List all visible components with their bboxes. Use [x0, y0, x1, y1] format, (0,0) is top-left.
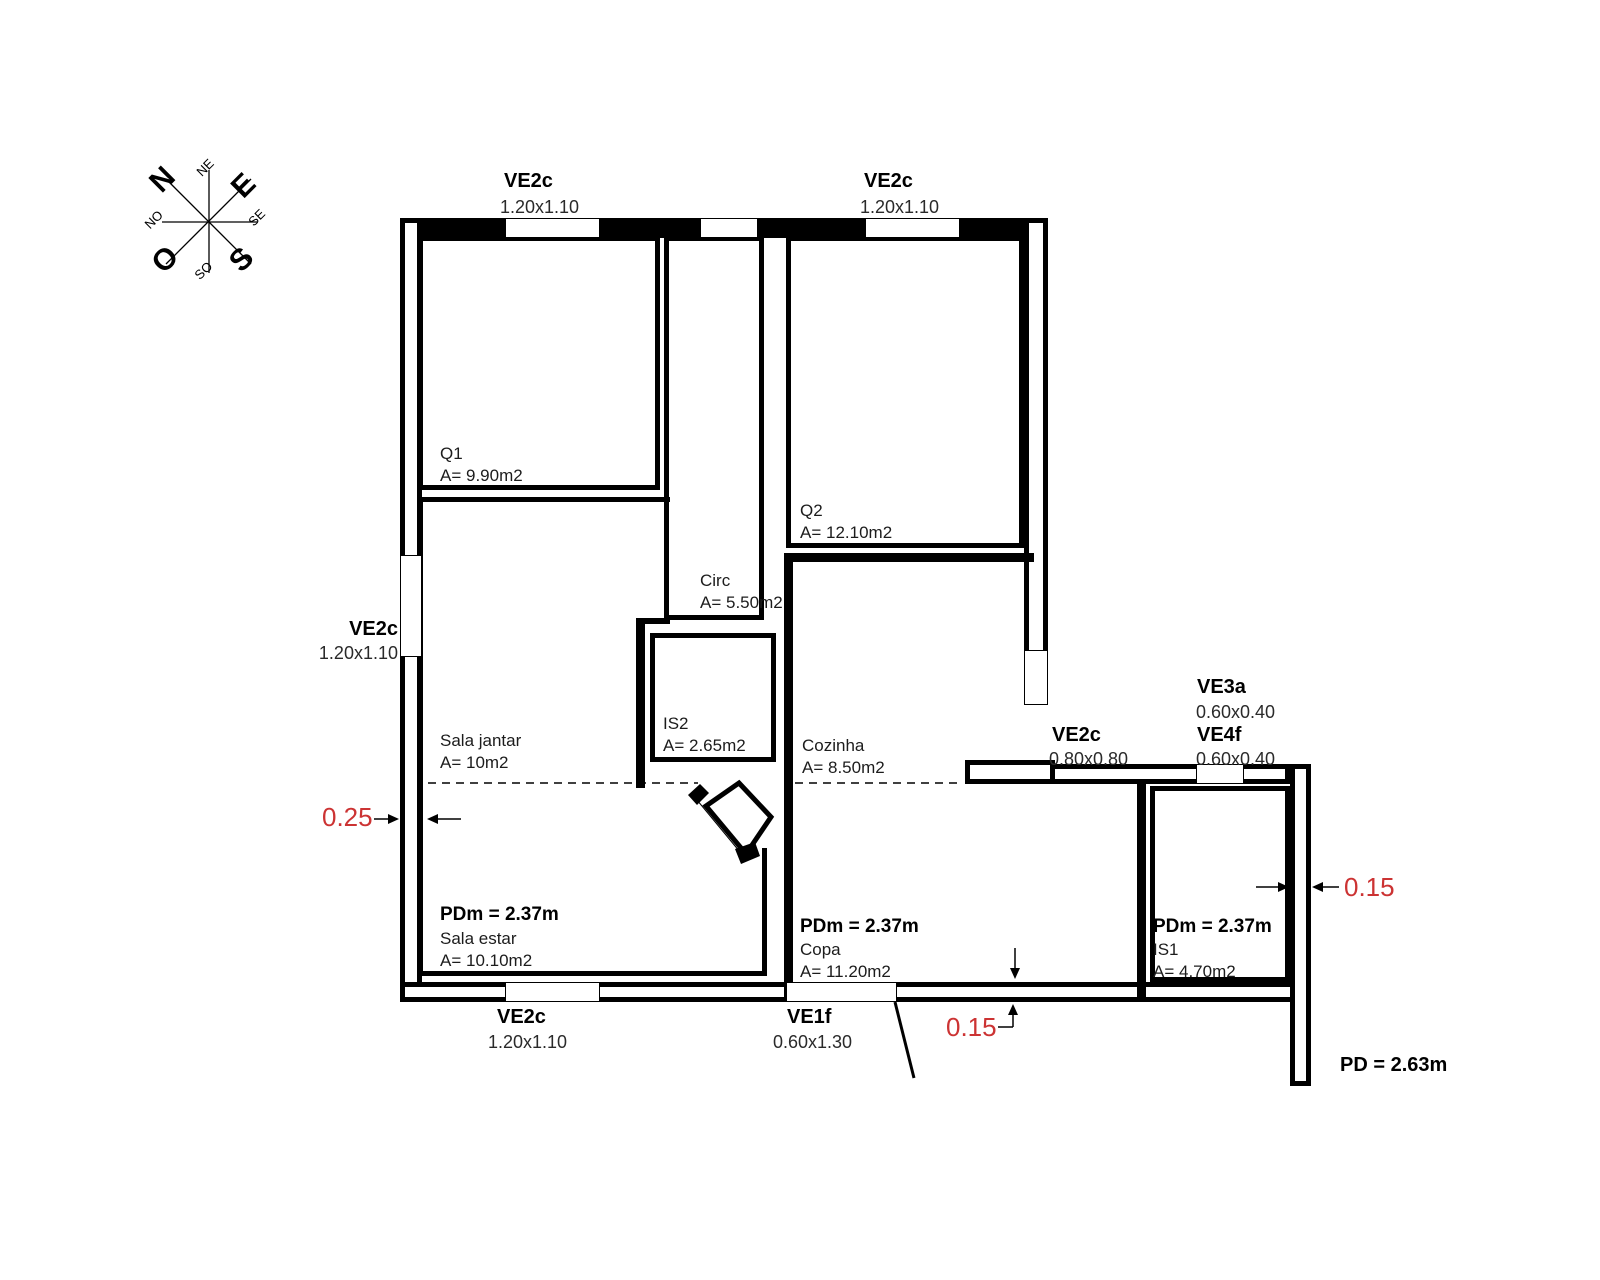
- window-label-ve3a-code: VE3a: [1197, 676, 1246, 699]
- window-label-ve4f-code: VE4f: [1197, 724, 1241, 747]
- room-label-cozinha-name: Cozinha: [802, 736, 864, 756]
- room-label-q2-area: A= 12.10m2: [800, 523, 892, 543]
- window-label-entry-size: 0.60x1.30: [773, 1032, 852, 1053]
- room-label-copa-area: A= 11.20m2: [800, 962, 891, 982]
- window-label-top-left-size: 1.20x1.10: [500, 197, 579, 218]
- window-label-bottom-size: 1.20x1.10: [488, 1032, 567, 1053]
- window-label-bottom-code: VE2c: [497, 1006, 546, 1029]
- room-label-sala-estar-name: Sala estar: [440, 929, 517, 949]
- window-label-entry-code: VE1f: [787, 1006, 831, 1029]
- room-label-circ-area: A= 5.50m2: [700, 593, 783, 613]
- window-label-top-right-code: VE2c: [864, 170, 913, 193]
- room-label-is1-area: A= 4.70m2: [1153, 962, 1236, 982]
- window-label-top-right-size: 1.20x1.10: [860, 197, 939, 218]
- room-label-cozinha-area: A= 8.50m2: [802, 758, 885, 778]
- room-label-q2-name: Q2: [800, 501, 823, 521]
- room-label-sala-jantar-area: A= 10m2: [440, 753, 509, 773]
- window-label-ve4f-size: 0.60x0.40: [1196, 749, 1275, 770]
- window-label-top-left-code: VE2c: [504, 170, 553, 193]
- floor-plan: N NE E SE S SO O NO Q1 A= 9.90m2 Circ A=…: [0, 0, 1600, 1280]
- room-label-sala-estar-area: A= 10.10m2: [440, 951, 532, 971]
- dim-bottom-wall: [998, 948, 1020, 1027]
- window-label-kitchen-size: 0.80x0.80: [1049, 749, 1128, 770]
- room-label-q1-name: Q1: [440, 444, 463, 464]
- room-label-is2-name: IS2: [663, 714, 689, 734]
- room-label-copa-name: Copa: [800, 940, 841, 960]
- dim-left-wall: [374, 814, 461, 824]
- dim-right-wall: [1256, 882, 1339, 892]
- ceiling-label-copa: PDm = 2.37m: [800, 916, 919, 938]
- ceiling-overall-label: PD = 2.63m: [1340, 1054, 1447, 1077]
- room-label-sala-jantar-name: Sala jantar: [440, 731, 521, 751]
- door-leaf: [688, 783, 771, 864]
- room-label-circ-name: Circ: [700, 571, 730, 591]
- room-label-is1-name: IS1: [1153, 940, 1179, 960]
- entry-door-line: [895, 1002, 914, 1078]
- room-label-q1-area: A= 9.90m2: [440, 466, 523, 486]
- ceiling-label-sala-estar: PDm = 2.37m: [440, 904, 559, 926]
- dim-label-right-wall: 0.15: [1344, 872, 1395, 903]
- dim-label-bottom-wall: 0.15: [946, 1012, 997, 1043]
- window-label-ve3a-size: 0.60x0.40: [1196, 702, 1275, 723]
- room-label-is2-area: A= 2.65m2: [663, 736, 746, 756]
- ceiling-label-is1: PDm = 2.37m: [1153, 916, 1272, 938]
- window-label-kitchen-code: VE2c: [1052, 724, 1101, 747]
- window-label-left-size: 1.20x1.10: [278, 643, 398, 664]
- window-label-left-code: VE2c: [278, 618, 398, 641]
- dim-label-left-wall: 0.25: [322, 802, 373, 833]
